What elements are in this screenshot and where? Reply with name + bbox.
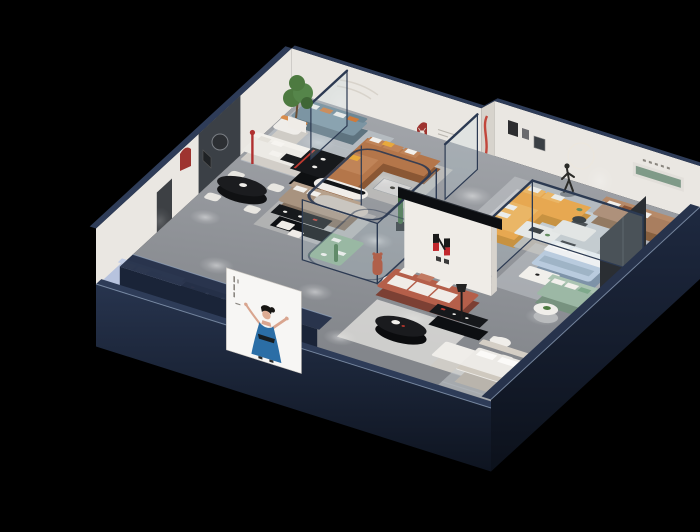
showroom-render <box>40 16 700 516</box>
logo-wall-side <box>491 219 497 296</box>
isometric-scene <box>40 16 700 516</box>
round-mirror <box>212 134 228 150</box>
